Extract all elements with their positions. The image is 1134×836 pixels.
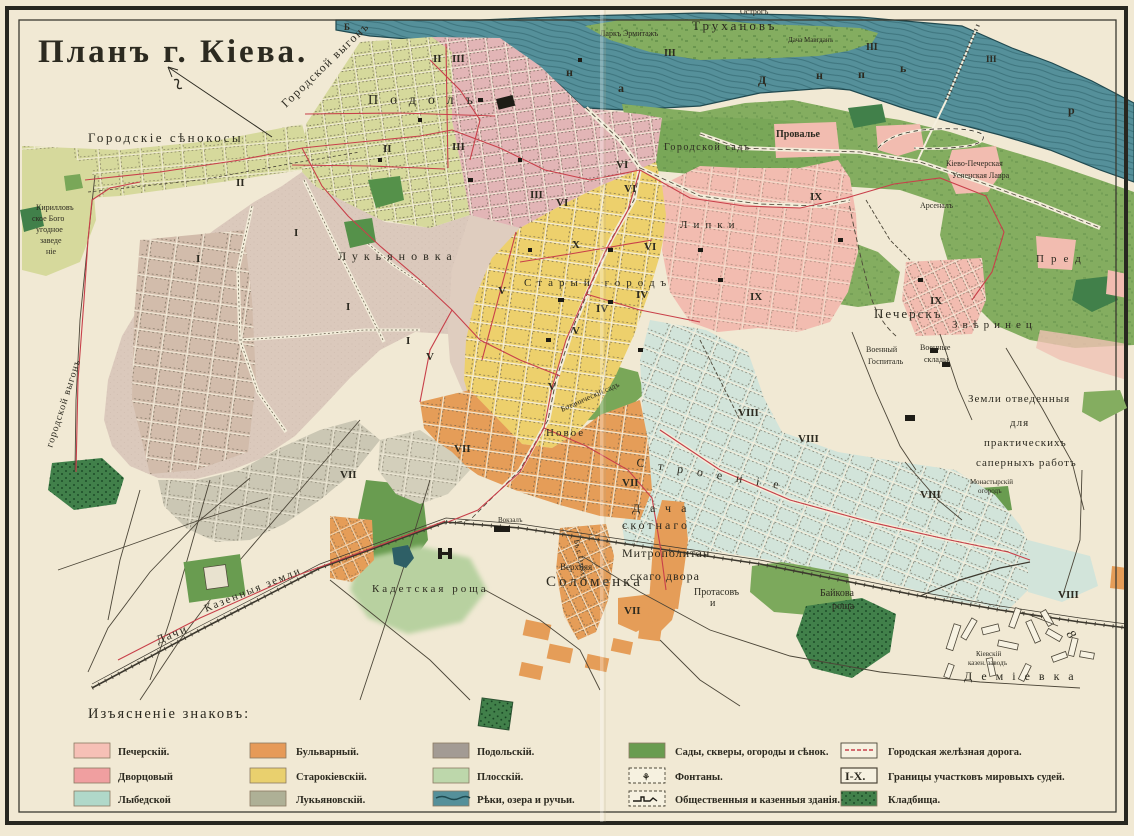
svg-text:скотнаго: скотнаго: [622, 518, 690, 532]
svg-text:Печерскъ: Печерскъ: [874, 306, 942, 321]
svg-text:Городскіе сѣнокосы: Городскіе сѣнокосы: [88, 130, 243, 145]
svg-text:Новое: Новое: [546, 427, 585, 439]
svg-text:роща: роща: [832, 601, 855, 612]
svg-text:VI: VI: [616, 159, 628, 171]
svg-text:II: II: [383, 143, 392, 155]
svg-text:IX: IX: [930, 295, 942, 307]
svg-text:Военные: Военные: [920, 343, 951, 352]
svg-text:V: V: [548, 381, 556, 393]
svg-text:Дворцовый: Дворцовый: [118, 772, 173, 783]
svg-text:II: II: [433, 53, 442, 65]
svg-text:Протасовъ: Протасовъ: [694, 587, 739, 598]
svg-text:Успенская Лавра: Успенская Лавра: [952, 171, 1010, 180]
svg-text:н: н: [816, 68, 823, 82]
svg-text:V: V: [498, 285, 506, 297]
svg-text:I: I: [346, 301, 350, 313]
svg-text:Липки: Липки: [680, 219, 740, 231]
svg-text:Монастырскій: Монастырскій: [970, 478, 1013, 486]
svg-text:ское Бого: ское Бого: [32, 214, 64, 223]
svg-text:для: для: [1010, 417, 1029, 429]
svg-text:Границы участковъ мировыхъ суд: Границы участковъ мировыхъ судей.: [888, 772, 1065, 783]
svg-text:Госпиталь: Госпиталь: [868, 357, 903, 366]
svg-text:III: III: [530, 189, 543, 201]
svg-text:Острогъ: Острогъ: [740, 7, 768, 16]
svg-text:Звѣринец: Звѣринец: [952, 319, 1037, 331]
svg-text:Рѣки, озера и ручьи.: Рѣки, озера и ручьи.: [477, 795, 575, 806]
svg-text:Лыбедской: Лыбедской: [118, 795, 171, 806]
svg-text:Кирилловъ: Кирилловъ: [36, 203, 74, 212]
svg-text:VIII: VIII: [798, 433, 819, 445]
svg-text:I: I: [196, 253, 200, 265]
svg-text:саперныхъ работъ: саперныхъ работъ: [976, 457, 1077, 469]
svg-text:VI: VI: [644, 241, 656, 253]
svg-text:а: а: [618, 81, 624, 95]
svg-text:Общественныя и казенныя зданія: Общественныя и казенныя зданія.: [675, 795, 840, 806]
svg-text:Кадетская роща: Кадетская роща: [372, 583, 489, 595]
svg-text:Изъясненіе знаковъ:: Изъясненіе знаковъ:: [88, 706, 250, 722]
svg-text:Б: Б: [344, 22, 350, 32]
svg-text:VIII: VIII: [920, 489, 941, 501]
svg-text:⚘: ⚘: [642, 772, 650, 782]
svg-text:VIII: VIII: [738, 407, 759, 419]
svg-text:Подольскій.: Подольскій.: [477, 747, 535, 758]
svg-text:и: и: [710, 598, 716, 609]
svg-text:р: р: [1068, 103, 1075, 117]
svg-text:практическихъ: практическихъ: [984, 437, 1067, 449]
svg-text:Дача Мавгданъ: Дача Мавгданъ: [788, 36, 834, 44]
svg-text:огородъ: огородъ: [978, 487, 1002, 495]
svg-text:Митрополитан: Митрополитан: [622, 546, 710, 560]
svg-text:заведе: заведе: [40, 236, 62, 245]
svg-text:Печерскій.: Печерскій.: [118, 747, 170, 758]
svg-text:Бульварный.: Бульварный.: [296, 747, 359, 758]
svg-text:Лукьяновскій.: Лукьяновскій.: [296, 795, 366, 806]
svg-text:X: X: [572, 239, 580, 251]
svg-text:IV: IV: [636, 289, 648, 301]
svg-text:п: п: [858, 67, 865, 81]
svg-text:I: I: [294, 227, 298, 239]
svg-text:Земли отведенныя: Земли отведенныя: [968, 393, 1070, 405]
svg-text:Кіевскій: Кіевскій: [976, 650, 1001, 658]
svg-text:VI: VI: [624, 183, 636, 195]
svg-text:Сады, скверы, огороды и сѣнок.: Сады, скверы, огороды и сѣнок.: [675, 747, 829, 758]
svg-text:казен. заводъ: казен. заводъ: [968, 659, 1008, 667]
svg-text:Подолъ: Подолъ: [368, 93, 485, 108]
svg-text:II: II: [236, 177, 245, 189]
svg-text:склады: склады: [924, 355, 949, 364]
svg-text:Фонтаны.: Фонтаны.: [675, 772, 723, 783]
svg-text:Пред: Пред: [1036, 253, 1088, 265]
svg-text:V: V: [572, 325, 580, 337]
svg-text:Старый городъ: Старый городъ: [524, 277, 672, 289]
svg-text:III: III: [986, 54, 997, 64]
svg-text:III: III: [866, 42, 878, 53]
svg-text:ніе: ніе: [46, 247, 57, 256]
svg-text:Кіево-Печерская: Кіево-Печерская: [946, 159, 1003, 168]
svg-text:угодное: угодное: [36, 225, 63, 234]
svg-text:Дача: Дача: [632, 501, 696, 515]
svg-text:Старокіевскій.: Старокіевскій.: [296, 772, 367, 783]
svg-text:III: III: [664, 48, 676, 59]
svg-text:н: н: [566, 65, 573, 79]
svg-text:VIII: VIII: [1058, 589, 1079, 601]
svg-text:Байкова: Байкова: [820, 588, 854, 599]
svg-text:Городской садъ: Городской садъ: [664, 142, 751, 153]
svg-text:Городская желѣзная дорога.: Городская желѣзная дорога.: [888, 747, 1022, 758]
svg-text:VII: VII: [624, 605, 641, 617]
svg-text:Д: Д: [758, 73, 767, 87]
svg-text:III: III: [452, 53, 465, 65]
svg-text:Плосскій.: Плосскій.: [477, 772, 524, 783]
svg-text:Лукьяновка: Лукьяновка: [338, 249, 458, 263]
svg-text:Трухановъ: Трухановъ: [692, 18, 777, 33]
svg-text:IX: IX: [810, 191, 822, 203]
svg-text:Кладбища.: Кладбища.: [888, 795, 940, 806]
svg-text:Соломенка: Соломенка: [546, 574, 643, 590]
svg-text:VII: VII: [454, 443, 471, 455]
svg-text:III: III: [452, 141, 465, 153]
svg-text:Вокзалъ: Вокзалъ: [498, 516, 523, 524]
svg-text:Арсеналъ: Арсеналъ: [920, 201, 953, 210]
svg-text:I: I: [406, 335, 410, 347]
svg-text:Военный: Военный: [866, 345, 898, 354]
svg-text:Планъ г. Кіева.: Планъ г. Кіева.: [38, 34, 308, 70]
svg-text:Ларкъ Эрмитажъ: Ларкъ Эрмитажъ: [600, 29, 658, 38]
svg-text:Провалье: Провалье: [776, 129, 820, 140]
svg-text:V: V: [426, 351, 434, 363]
svg-text:VII: VII: [340, 469, 357, 481]
svg-text:ь: ь: [900, 61, 907, 75]
svg-text:VII: VII: [622, 477, 639, 489]
svg-text:IX: IX: [750, 291, 762, 303]
svg-text:Деміевка: Деміевка: [964, 669, 1083, 683]
svg-text:I-X.: I-X.: [845, 769, 865, 783]
svg-text:VI: VI: [556, 197, 568, 209]
